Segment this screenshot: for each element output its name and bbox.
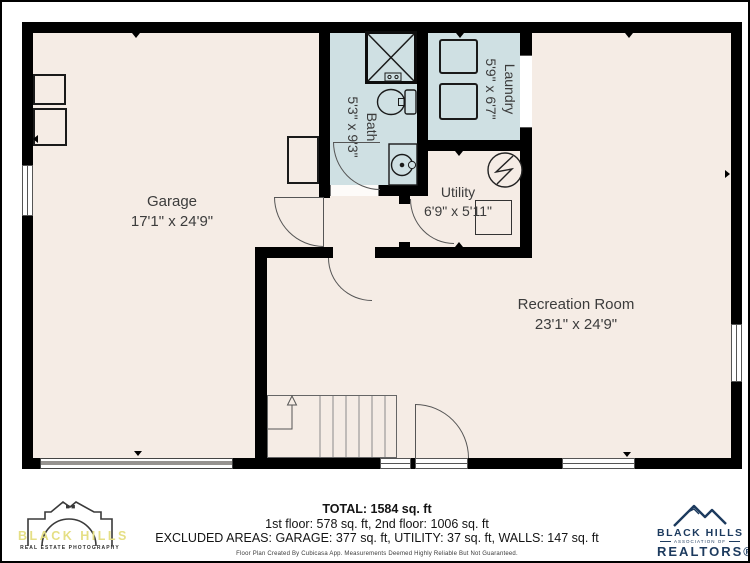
wall-bath-left bbox=[319, 22, 330, 198]
window-right-wall bbox=[731, 324, 742, 382]
room-label-laundry: Laundry 5'9" x 6'7" bbox=[481, 37, 519, 141]
room-name: Recreation Room bbox=[476, 295, 676, 315]
dimension-tick bbox=[455, 151, 463, 156]
room-dims: 23'1" x 24'9" bbox=[476, 315, 676, 335]
wall-east-upper bbox=[520, 22, 532, 55]
dryer-icon bbox=[439, 83, 478, 120]
excluded-areas-text: EXCLUDED AREAS: GARAGE: 377 sq. ft, UTIL… bbox=[127, 532, 627, 544]
wall-garage-divider bbox=[255, 247, 267, 458]
realtors-logo: BLACK HILLS ASSOCIATION OF REALTORS® bbox=[657, 500, 743, 560]
garage-overhead-door bbox=[40, 458, 233, 469]
floor-areas-text: 1st floor: 578 sq. ft, 2nd floor: 1006 s… bbox=[127, 518, 627, 530]
disclaimer-text: Floor Plan Created By Cubicasa App. Meas… bbox=[127, 551, 627, 557]
photographer-name: BLACK HILLS bbox=[18, 529, 122, 543]
wall-east-lower bbox=[520, 128, 532, 258]
dimension-tick bbox=[625, 33, 633, 38]
room-dims: 5'3" x 9'3" bbox=[343, 77, 362, 177]
wall-outer-right bbox=[731, 22, 742, 469]
dimension-tick bbox=[33, 135, 38, 143]
dimension-tick bbox=[725, 170, 730, 178]
room-dims: 6'9" x 5'11" bbox=[398, 202, 518, 221]
wall-outer-left bbox=[22, 22, 33, 469]
window-bottom-small bbox=[380, 458, 411, 469]
room-name: Garage bbox=[92, 192, 252, 212]
photographer-tagline: REAL ESTATE PHOTOGRAPHY bbox=[18, 545, 122, 551]
association-name: BLACK HILLS bbox=[657, 527, 743, 539]
total-area-text: TOTAL: 1584 sq. ft bbox=[127, 502, 627, 516]
washer-icon bbox=[439, 39, 478, 74]
window-left-wall bbox=[22, 165, 33, 216]
dimension-tick bbox=[132, 33, 140, 38]
garage-utility-box bbox=[287, 136, 319, 184]
dimension-tick bbox=[455, 242, 463, 247]
window-bottom-right bbox=[562, 458, 635, 469]
room-label-bath: Bath 5'3" x 9'3" bbox=[343, 77, 381, 177]
dimension-tick bbox=[134, 451, 142, 456]
area-summary: TOTAL: 1584 sq. ft 1st floor: 578 sq. ft… bbox=[127, 502, 627, 557]
staircase bbox=[267, 395, 397, 458]
floor-plan-page: Garage 17'1" x 24'9" Bath 5'3" x 9'3" La… bbox=[0, 0, 750, 563]
room-name: Laundry bbox=[500, 37, 519, 141]
photographer-logo: BLACK HILLS REAL ESTATE PHOTOGRAPHY bbox=[18, 498, 122, 560]
garage-storage-box-1 bbox=[33, 74, 66, 105]
dimension-tick bbox=[456, 33, 464, 38]
room-name: Bath bbox=[362, 77, 381, 177]
room-label-utility: Utility 6'9" x 5'11" bbox=[398, 183, 518, 221]
room-name: Utility bbox=[398, 183, 518, 202]
exterior-door-threshold bbox=[415, 458, 468, 469]
wall-hall-right bbox=[375, 247, 532, 258]
dimension-tick bbox=[623, 452, 631, 457]
association-title: REALTORS® bbox=[657, 544, 743, 559]
room-dims: 17'1" x 24'9" bbox=[92, 212, 252, 232]
room-label-recreation: Recreation Room 23'1" x 24'9" bbox=[476, 295, 676, 336]
laundry-opening bbox=[520, 55, 532, 128]
room-label-garage: Garage 17'1" x 24'9" bbox=[92, 192, 252, 233]
garage-storage-box-2 bbox=[33, 108, 67, 146]
room-dims: 5'9" x 6'7" bbox=[481, 37, 500, 141]
wall-bath-laundry bbox=[417, 22, 428, 196]
wall-laundry-bottom bbox=[417, 140, 532, 151]
